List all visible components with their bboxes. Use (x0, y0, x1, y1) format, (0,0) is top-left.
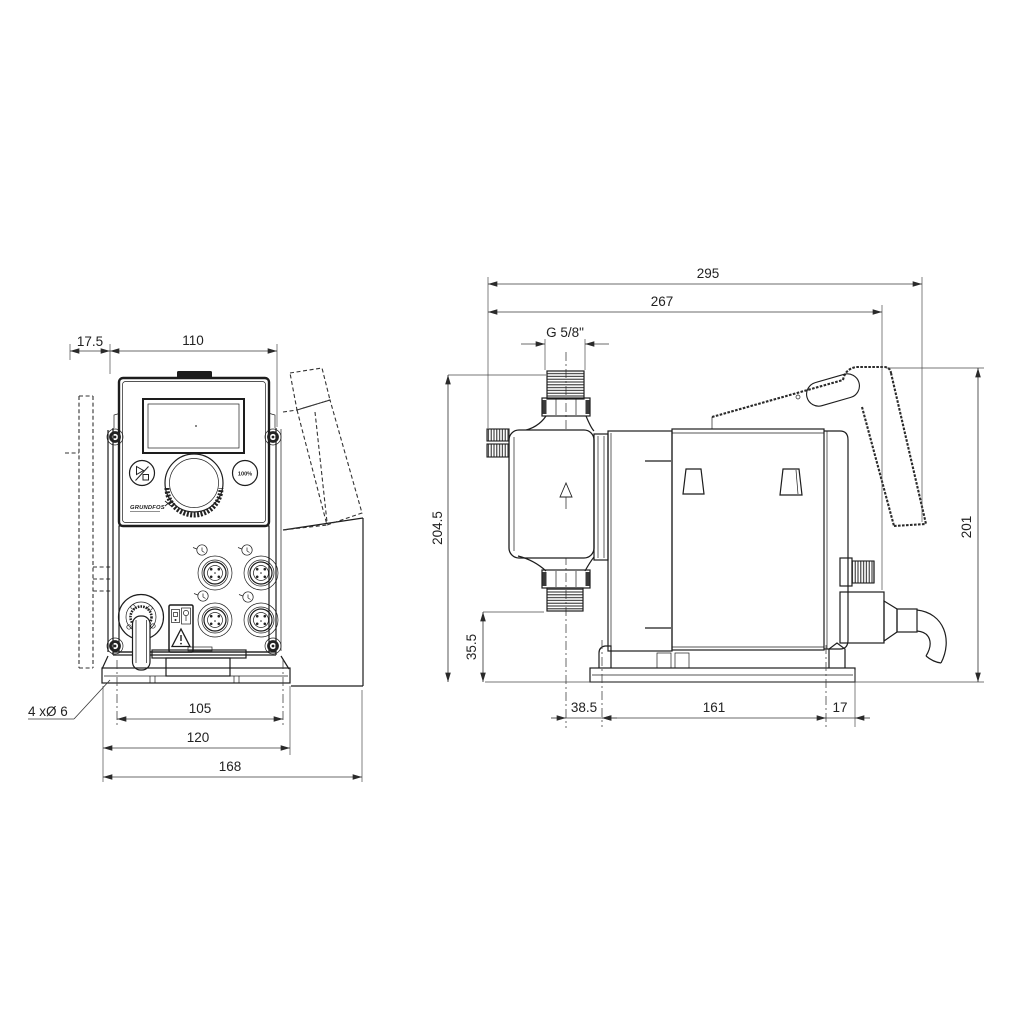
screw-icon (107, 429, 123, 445)
discharge-thread (547, 371, 584, 399)
display (143, 399, 244, 453)
m12-socket[interactable] (244, 603, 278, 637)
connector-flange (840, 558, 852, 586)
dim-hole-spacing: 105 (189, 701, 212, 716)
dim-length-to-gland: 267 (651, 294, 674, 309)
rear-thread-stub (852, 561, 874, 583)
display-dot (195, 425, 197, 427)
dim-hole-spacing-side: 161 (703, 700, 726, 715)
dim-valve-height: 35.5 (464, 634, 479, 660)
m12-socket[interactable] (198, 603, 232, 637)
dim-body-width: 110 (182, 333, 204, 348)
m12-socket[interactable] (198, 556, 232, 590)
dosing-head (487, 371, 608, 611)
dim-offset-left: 17.5 (77, 334, 103, 349)
socket-id-icon (238, 545, 252, 555)
power-cable-flange (119, 595, 164, 671)
base-plate-side (590, 643, 855, 682)
connector-sockets (193, 545, 278, 637)
rear-connections (840, 558, 946, 663)
bleed-valve-knob[interactable] (487, 429, 509, 457)
drive-housing (608, 429, 848, 651)
cable-gland (840, 592, 884, 643)
dim-edge-offset: 17 (832, 700, 847, 715)
logo-text: GRUNDFOS (130, 505, 165, 511)
head-flange (594, 434, 608, 560)
motor-box (672, 429, 824, 650)
socket-id-icon (194, 591, 208, 601)
max-button-label: 100% (238, 472, 252, 478)
mount-hook (683, 469, 704, 494)
foot-tab (829, 643, 845, 668)
control-panel: 100% GRUNDFOS (119, 371, 269, 526)
foot-tab (599, 646, 611, 668)
wall-plate-phantom (65, 396, 112, 668)
dim-plate-width: 120 (187, 730, 210, 745)
side-view: 295 267 G 5/8" 204.5 35.5 201 (430, 266, 984, 728)
suction-thread (547, 588, 583, 611)
thread-callout: G 5/8" (546, 325, 584, 340)
adapter-section (608, 431, 672, 651)
front-view: 100% GRUNDFOS (28, 333, 363, 782)
power-cord (917, 610, 946, 663)
holes-callout: 4 xØ 6 (28, 704, 68, 719)
housing-behind (283, 518, 363, 686)
technical-drawing: 100% GRUNDFOS (0, 0, 1024, 1024)
tilted-control-cube-phantom (283, 368, 362, 530)
dim-head-offset: 38.5 (571, 700, 597, 715)
dim-height-rear: 201 (959, 516, 974, 539)
control-cube-side (712, 367, 926, 526)
drawing-canvas: 100% GRUNDFOS (0, 0, 1024, 1024)
cube-wheel-profile (804, 371, 863, 409)
screw-icon (265, 429, 281, 445)
dim-total-width: 168 (219, 759, 242, 774)
screw-icon (265, 638, 281, 654)
socket-id-icon (239, 592, 253, 602)
rear-cover (824, 431, 848, 649)
mount-hook (780, 469, 802, 495)
screw-icon (107, 638, 123, 654)
socket-id-icon (193, 545, 207, 555)
gland-nut (897, 609, 917, 632)
power-cable (133, 616, 151, 670)
pump-head-body (509, 430, 594, 558)
dim-height-total: 204.5 (430, 511, 445, 545)
warning-label (169, 605, 193, 652)
top-tab (177, 371, 212, 378)
dim-total-length: 295 (697, 266, 720, 281)
m12-socket[interactable] (244, 556, 278, 590)
